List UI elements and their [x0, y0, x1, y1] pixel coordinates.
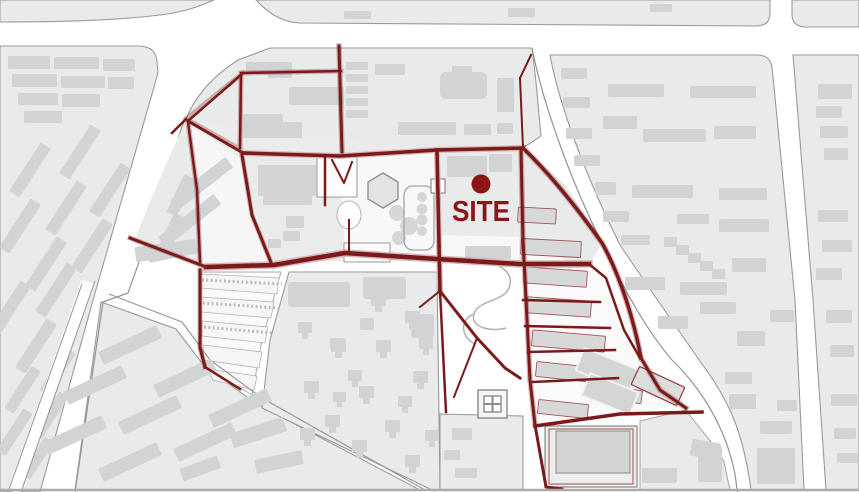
svg-text:SITE: SITE	[452, 196, 510, 228]
